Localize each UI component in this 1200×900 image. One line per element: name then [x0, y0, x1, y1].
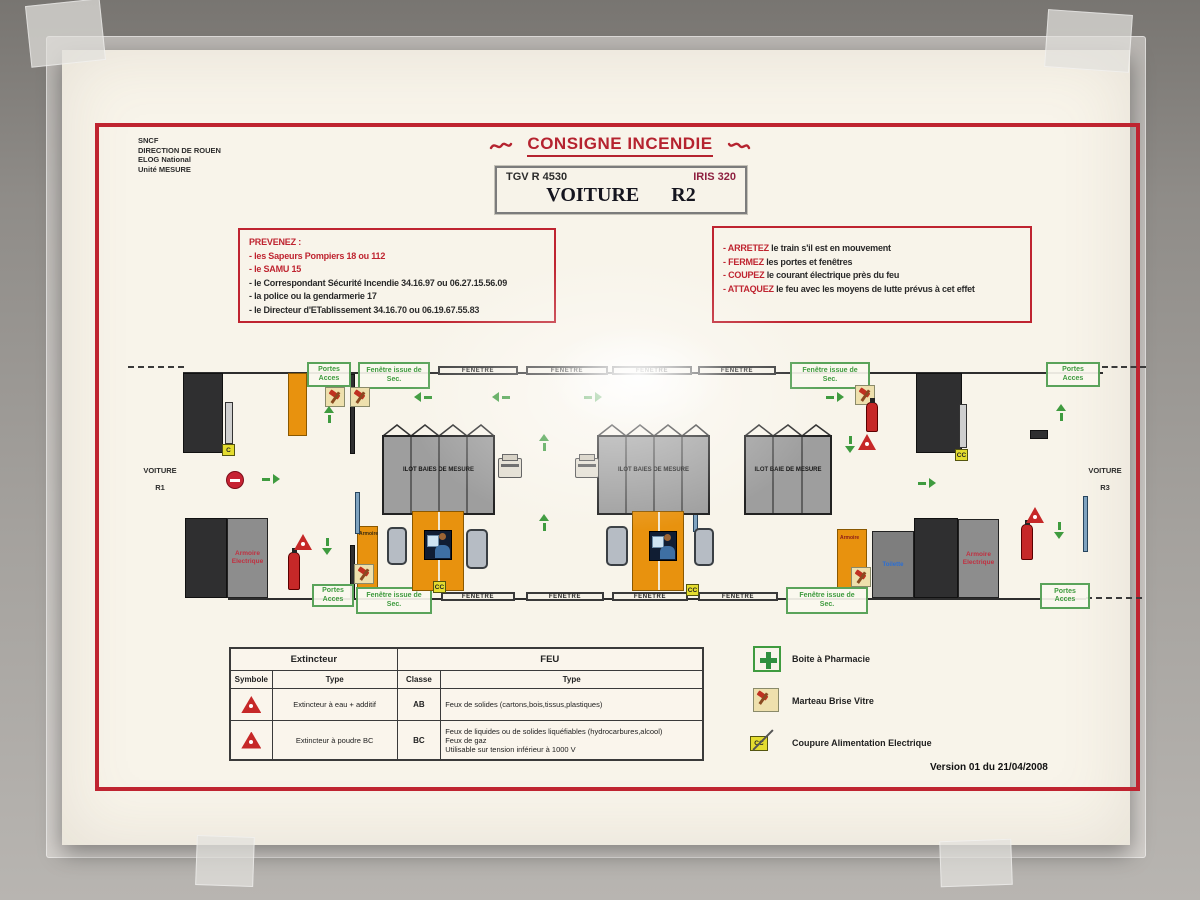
door-cabinet: [288, 373, 307, 436]
window-label: FENETRE: [698, 366, 776, 375]
voiture-number: R3: [1080, 483, 1130, 492]
prevenez-title: PREVENEZ :: [249, 236, 545, 250]
cabinet-block: [914, 518, 958, 598]
header-extincteur: Extincteur: [231, 649, 398, 671]
org-line: DIRECTION DE ROUEN: [138, 146, 221, 156]
warning-triangle-icon: [241, 696, 261, 713]
fenetre-issue-label: Sec.: [358, 601, 430, 610]
coupler-dash-right: [1102, 366, 1146, 368]
feu-line: Utilisable sur tension inférieur à 1000 …: [445, 745, 576, 754]
type-cell: Extincteur à eau + additif: [273, 689, 398, 721]
page-title: CONSIGNE INCENDIE: [527, 134, 712, 157]
arrow-down-icon: [845, 436, 855, 453]
sliding-door-bar: [355, 492, 360, 534]
fenetre-issue-label: Fenêtre issue de: [792, 367, 868, 376]
flame-right-icon: [727, 139, 751, 153]
feu-line: Feux de gaz: [445, 736, 486, 745]
operator-image: [649, 531, 677, 561]
actions-box: - ARRETEZ le train s'il est en mouvement…: [712, 226, 1032, 323]
arrow-up-icon: [539, 514, 549, 531]
car-line: VOITURE R2: [506, 184, 736, 207]
arrow-up-icon: [324, 406, 334, 423]
train-line: TGV R 4530 IRIS 320: [506, 171, 736, 183]
window-label: FENETRE: [441, 592, 515, 601]
armoire-label: Armoire: [840, 535, 859, 541]
hammer-icon: [753, 688, 779, 712]
flame-left-icon: [489, 139, 513, 153]
version-text: Version 01 du 21/04/2008: [930, 762, 1048, 773]
window-label: FENETRE: [698, 592, 778, 601]
prevenez-item: - la police ou la gendarmerie 17: [249, 290, 545, 304]
armoire-electrique-label: Electrique: [232, 558, 263, 566]
table-header-row: Extincteur FEU: [231, 649, 702, 671]
window-label: FENETRE: [612, 592, 688, 601]
window-label: FENETRE: [526, 592, 604, 601]
window-label: FENETRE: [612, 366, 692, 375]
ilot-label: ILOT BAIES DE MESURE: [597, 467, 710, 473]
portes-acces-box: Portes Acces: [307, 362, 351, 387]
chair: [387, 527, 407, 565]
extinguisher-icon: [866, 402, 878, 432]
hammer-icon: [851, 567, 871, 587]
coupure-cc-box: CC: [433, 581, 446, 593]
ladder-bar: [959, 404, 967, 448]
wall-bracket: [1030, 430, 1048, 439]
coupler-dash-left: [128, 366, 184, 368]
arrow-left-icon: [414, 392, 432, 402]
table-row: Extincteur à eau + additif AB Feux de so…: [231, 689, 702, 721]
portes-acces-label: Portes: [1042, 588, 1088, 597]
fenetre-issue-label: Fenêtre issue de: [358, 592, 430, 601]
ilot-baies-cabinet: ILOT BAIES DE MESURE: [382, 423, 495, 515]
sliding-door-bar: [1083, 496, 1088, 552]
col-classe: Classe: [398, 671, 442, 689]
title-row: CONSIGNE INCENDIE: [460, 134, 780, 157]
portes-acces-label: Acces: [314, 596, 352, 605]
toilette-label: Toilette: [883, 562, 904, 568]
prevenez-box: PREVENEZ : - les Sapeurs Pompiers 18 ou …: [238, 228, 556, 323]
action-rest: le courant électrique près du feu: [764, 270, 899, 280]
armoire-label: Armoire: [359, 531, 378, 537]
arrow-down-icon: [1054, 522, 1064, 539]
printer-icon: [575, 458, 599, 478]
table-subheader-row: Symbole Type Classe Type: [231, 671, 702, 689]
arrow-right-icon: [826, 392, 844, 402]
voiture-r3-label: VOITURE R3: [1080, 466, 1130, 492]
tape-bottom-left: [195, 835, 255, 887]
hammer-icon: [325, 387, 345, 407]
voiture-word: VOITURE: [1080, 466, 1130, 475]
prevenez-item: - le Correspondant Sécurité Incendie 34.…: [249, 277, 545, 291]
train-name: IRIS 320: [693, 171, 736, 183]
coupler-dash-bottom-right: [1086, 597, 1142, 599]
arrow-right-icon: [584, 392, 602, 402]
voiture-number: R1: [135, 483, 185, 492]
org-line: SNCF: [138, 136, 221, 146]
fenetre-issue-box: Fenêtre issue de Sec.: [358, 362, 430, 389]
ilot-label: ILOT BAIES DE MESURE: [382, 467, 495, 473]
portes-acces-label: Portes: [309, 366, 349, 375]
coupure-cc-box: CC: [955, 449, 968, 461]
classe-cell: BC: [398, 721, 442, 759]
action-rest: le feu avec les moyens de lutte prévus à…: [774, 284, 975, 294]
fenetre-issue-label: Sec.: [792, 376, 868, 385]
coupure-c-box: C: [222, 444, 235, 456]
portes-acces-label: Portes: [1048, 366, 1098, 375]
tape-bottom-right: [939, 839, 1013, 887]
cabinet-block: [916, 373, 962, 453]
fenetre-issue-label: Fenêtre issue de: [788, 592, 866, 601]
fenetre-issue-box: Fenêtre issue de Sec.: [356, 587, 432, 614]
col-type: Type: [273, 671, 398, 689]
ladder-bar: [225, 402, 233, 444]
classe-cell: AB: [398, 689, 442, 721]
fenetre-issue-label: Fenêtre issue de: [360, 367, 428, 376]
arrow-up-icon: [539, 434, 549, 451]
armoire-electrique-left: Armoire Electrique: [227, 518, 268, 598]
car-number: R2: [671, 184, 695, 207]
operator-body: [660, 546, 675, 559]
window-label: FENETRE: [438, 366, 518, 375]
action-item: - FERMEZ les portes et fenêtres: [723, 256, 1021, 270]
armoire-electrique-right: Armoire Electrique: [958, 519, 999, 598]
arrow-right-icon: [918, 478, 936, 488]
operator-body: [435, 545, 450, 558]
operator-image: [424, 530, 452, 560]
portes-acces-box: Portes Acces: [1046, 362, 1100, 387]
arrow-left-icon: [492, 392, 510, 402]
header-feu: FEU: [398, 649, 702, 671]
action-keyword: - ARRETEZ: [723, 243, 769, 253]
action-item: - ARRETEZ le train s'il est en mouvement: [723, 242, 1021, 256]
ilot-baies-cabinet: ILOT BAIES DE MESURE: [597, 423, 710, 515]
org-block: SNCF DIRECTION DE ROUEN ELOG National Un…: [138, 136, 221, 174]
portes-acces-label: Acces: [1042, 596, 1088, 605]
train-id: TGV R 4530: [506, 171, 567, 183]
no-entry-icon: [226, 471, 244, 489]
type-cell: Extincteur à poudre BC: [273, 721, 398, 759]
pharmacy-icon: [753, 646, 781, 672]
arrow-right-icon: [262, 474, 280, 484]
feu-cell: Feux de solides (cartons,bois,tissus,pla…: [441, 689, 702, 721]
hammer-icon: [350, 387, 370, 407]
chair: [694, 528, 714, 566]
portes-acces-box: Portes Acces: [1040, 583, 1090, 609]
tape-top-right: [1044, 9, 1133, 73]
printer-icon: [498, 458, 522, 478]
cabinet-block: [183, 373, 223, 453]
action-item: - COUPEZ le courant électrique près du f…: [723, 269, 1021, 283]
warning-triangle-icon: [241, 732, 261, 749]
feu-line: Feux de liquides ou de solides liquéfiab…: [445, 727, 662, 736]
action-keyword: - COUPEZ: [723, 270, 764, 280]
train-identification-box: TGV R 4530 IRIS 320 VOITURE R2: [495, 166, 747, 214]
armoire-electrique-label: Armoire: [966, 551, 991, 559]
voiture-word: VOITURE: [135, 466, 185, 475]
portes-acces-box: Portes Acces: [312, 584, 354, 607]
action-keyword: - FERMEZ: [723, 257, 764, 267]
arrow-down-icon: [322, 538, 332, 555]
ilot-baie-cabinet: ILOT BAIE DE MESURE: [744, 423, 832, 515]
chair: [606, 526, 628, 566]
voiture-r1-label: VOITURE R1: [135, 466, 185, 492]
feu-cell: Feux de liquides ou de solides liquéfiab…: [441, 721, 702, 759]
coupure-cc-box: CC: [686, 584, 699, 596]
tape-top-left: [25, 0, 106, 68]
prevenez-item: - les Sapeurs Pompiers 18 ou 112: [249, 250, 545, 264]
armoire-electrique-label: Electrique: [963, 559, 994, 567]
portes-acces-label: Acces: [1048, 375, 1098, 384]
org-line: ELOG National: [138, 155, 221, 165]
window-label: FENETRE: [526, 366, 608, 375]
fenetre-issue-label: Sec.: [360, 376, 428, 385]
cabinet-block: [185, 518, 227, 598]
car-word: VOITURE: [546, 184, 639, 207]
action-item: - ATTAQUEZ le feu avec les moyens de lut…: [723, 283, 1021, 297]
action-keyword: - ATTAQUEZ: [723, 284, 774, 294]
action-rest: le train s'il est en mouvement: [769, 243, 891, 253]
extinguisher-icon: [1021, 524, 1033, 560]
coupure-label: Coupure Alimentation Electrique: [792, 738, 932, 748]
extinguisher-table: Extincteur FEU Symbole Type Classe Type …: [229, 647, 704, 761]
portes-acces-label: Portes: [314, 587, 352, 596]
org-line: Unité MESURE: [138, 165, 221, 175]
prevenez-item: - le SAMU 15: [249, 263, 545, 277]
hammer-icon: [354, 564, 374, 584]
pharmacy-label: Boite à Pharmacie: [792, 654, 870, 664]
ilot-label: ILOT BAIE DE MESURE: [744, 467, 832, 473]
chair: [466, 529, 488, 569]
armoire-electrique-label: Armoire: [235, 550, 260, 558]
symbole-cell: [231, 721, 273, 759]
fenetre-issue-box: Fenêtre issue de Sec.: [786, 587, 868, 614]
col-symbole: Symbole: [231, 671, 273, 689]
table-row: Extincteur à poudre BC BC Feux de liquid…: [231, 721, 702, 759]
hammer-label: Marteau Brise Vitre: [792, 696, 874, 706]
toilette-room: Toilette: [872, 531, 914, 598]
action-rest: les portes et fenêtres: [764, 257, 852, 267]
fenetre-issue-label: Sec.: [788, 601, 866, 610]
prevenez-item: - le Directeur d'ETablissement 34.16.70 …: [249, 304, 545, 318]
symbole-cell: [231, 689, 273, 721]
portes-acces-label: Acces: [309, 375, 349, 384]
extinguisher-icon: [288, 552, 300, 590]
arrow-up-icon: [1056, 404, 1066, 421]
col-type2: Type: [441, 671, 702, 689]
